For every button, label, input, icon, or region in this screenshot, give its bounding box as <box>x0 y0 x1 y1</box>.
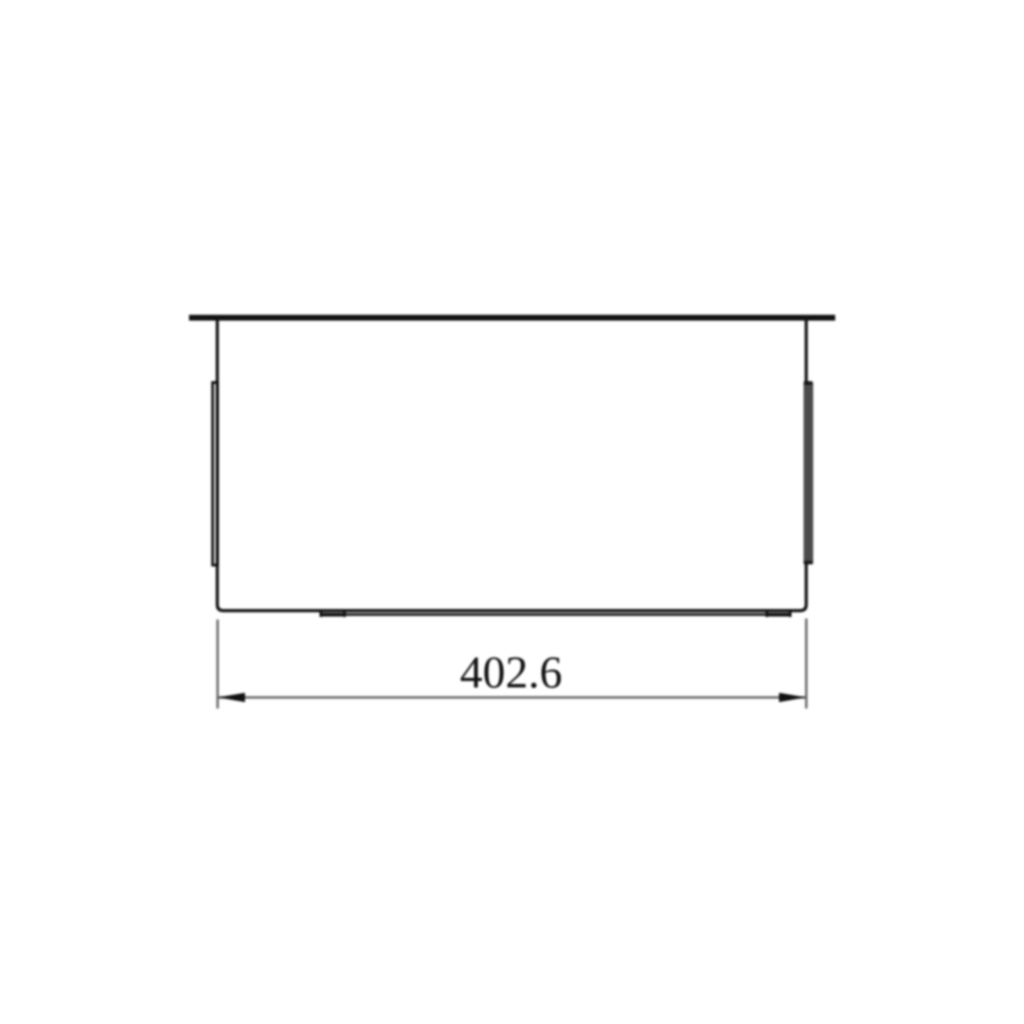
svg-text:402.6: 402.6 <box>460 647 562 698</box>
